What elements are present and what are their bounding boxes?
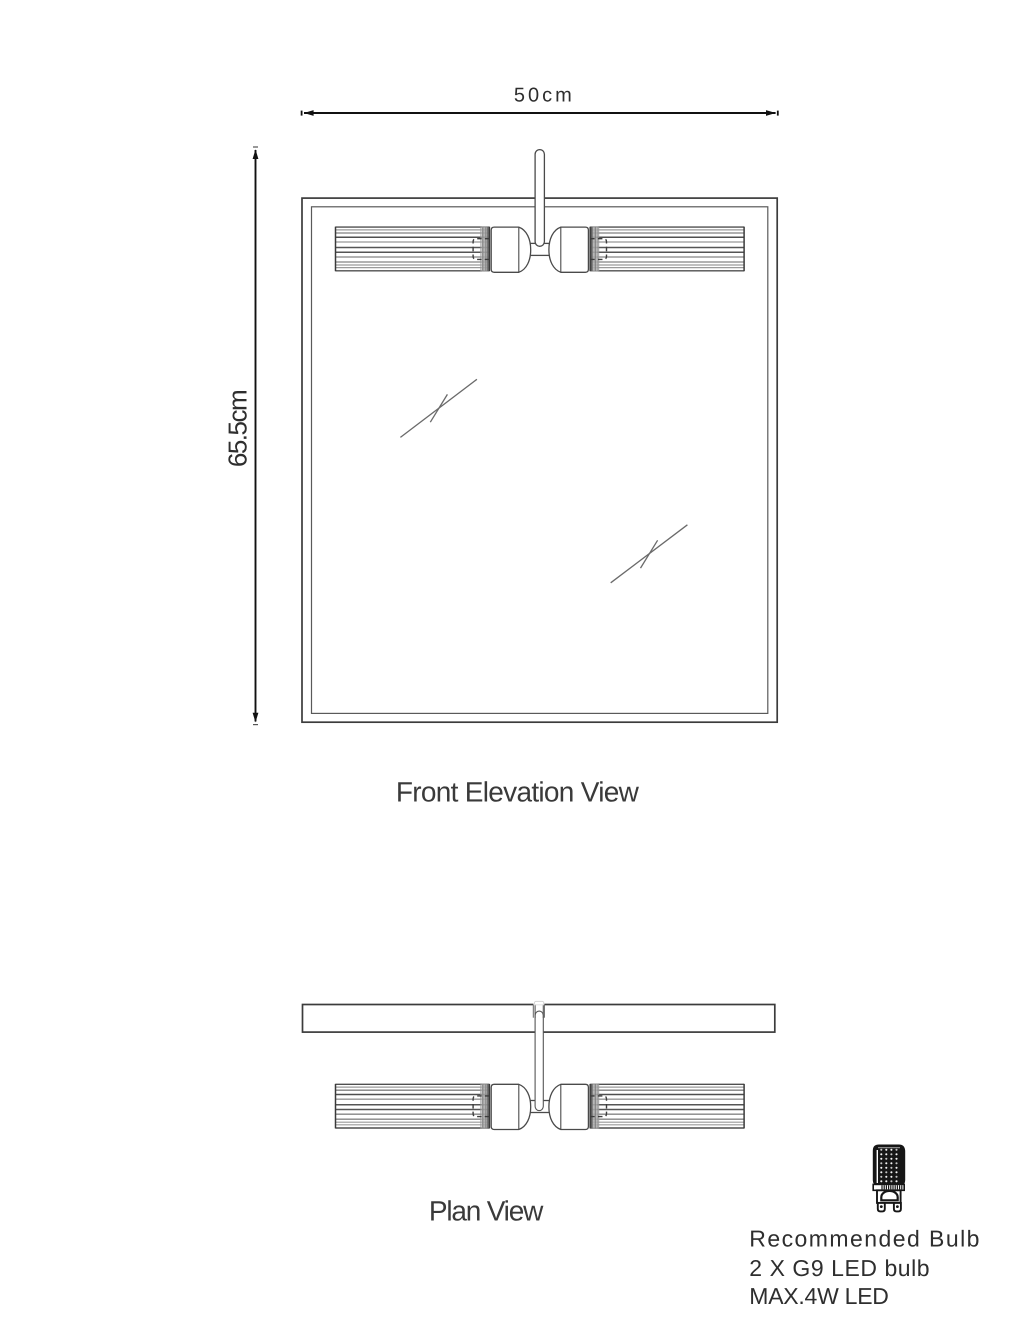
svg-text:50cm: 50cm	[514, 85, 575, 107]
svg-text:MAX.4W LED: MAX.4W LED	[749, 1283, 888, 1309]
svg-text:65.5cm: 65.5cm	[223, 391, 253, 467]
svg-text:Front Elevation View: Front Elevation View	[396, 777, 640, 808]
svg-text:2 X G9 LED bulb: 2 X G9 LED bulb	[749, 1255, 930, 1281]
svg-text:Recommended Bulb: Recommended Bulb	[749, 1226, 981, 1252]
svg-text:Plan View: Plan View	[429, 1196, 544, 1227]
